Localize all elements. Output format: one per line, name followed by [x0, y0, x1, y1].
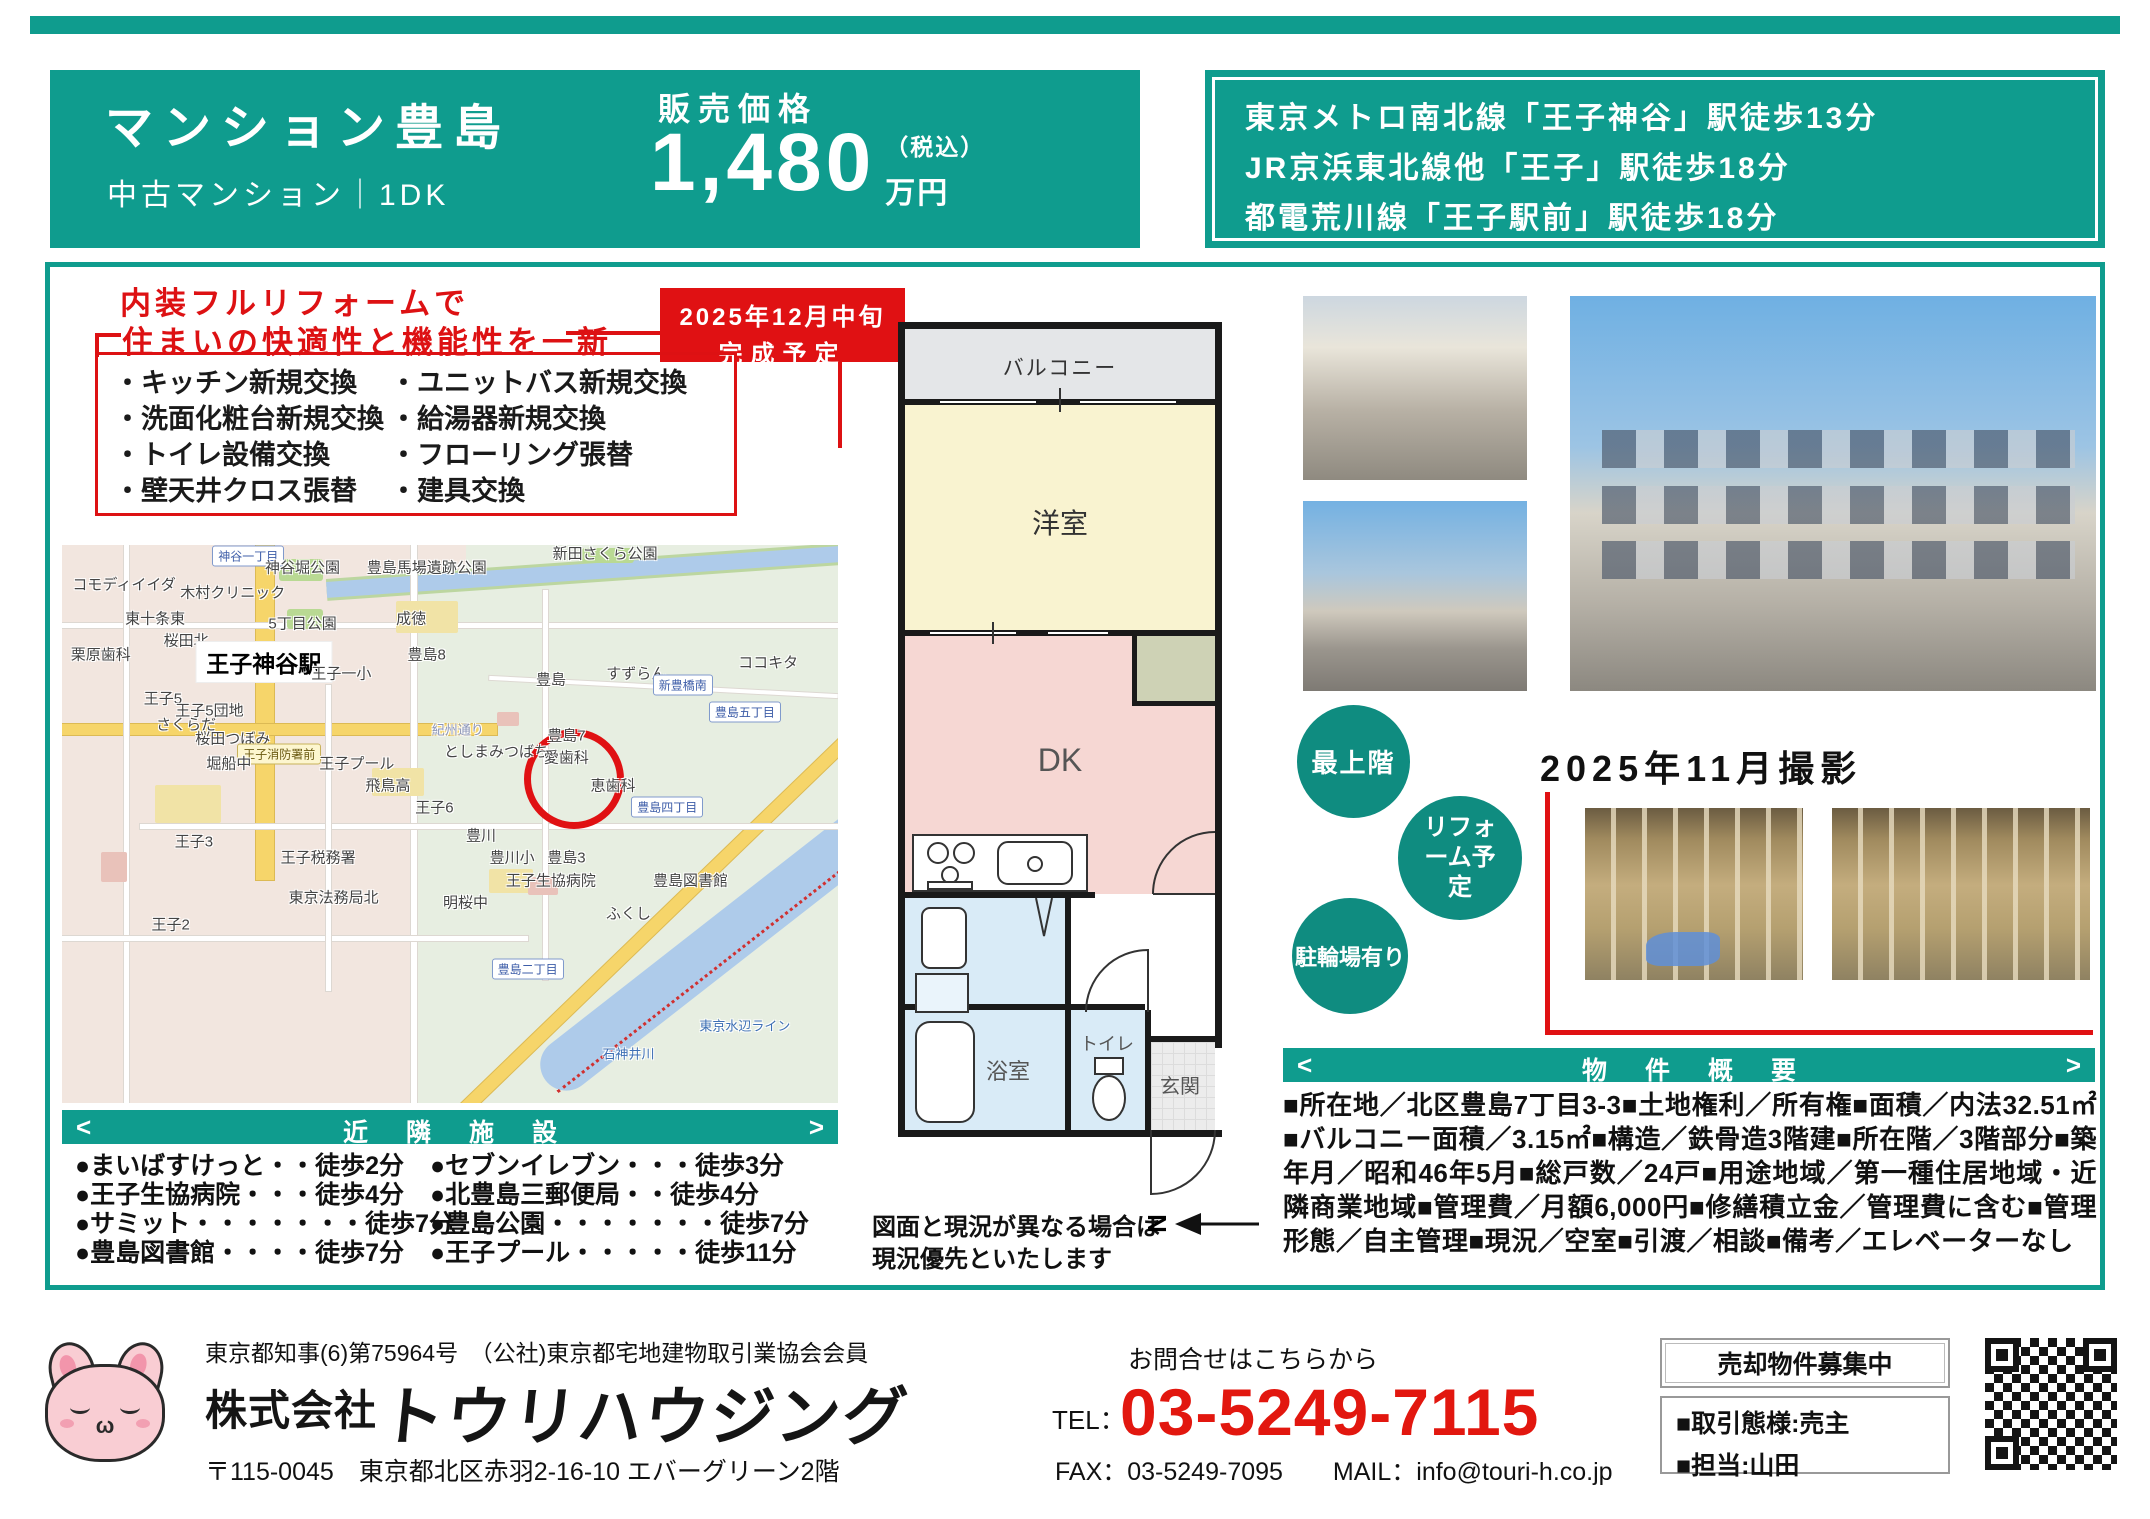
- bath-label: 浴室: [986, 1054, 1030, 1086]
- renovation-item: ・ユニットバス新規交換: [390, 365, 687, 401]
- renovation-items-left: ・キッチン新規交換・洗面化粧台新規交換・トイレ設備交換・壁天井クロス張替: [114, 365, 384, 509]
- map-label: 新田さくら公園: [553, 545, 658, 564]
- header-access-panel: 東京メトロ南北線「王子神谷」駅徒歩13分JR京浜東北線他「王子」駅徒歩18分都電…: [1205, 70, 2105, 248]
- facilities-list-right: ●セブンイレブン・・・徒歩3分●北豊島三郵便局・・徒歩4分●豊島公園・・・・・・…: [430, 1152, 809, 1268]
- toilet-label: トイレ: [1080, 1030, 1134, 1056]
- top-accent-strip: [30, 16, 2120, 34]
- map-label: 栗原歯科: [71, 643, 131, 664]
- map-label: 豊川: [466, 825, 496, 846]
- property-overview-text: ■所在地／北区豊島7丁目3-3■土地権利／所有権■面積／内法32.51㎡■バルコ…: [1283, 1088, 2097, 1258]
- company-logo: 株式会社 トウリハウジング: [205, 1366, 909, 1458]
- closet: [1132, 636, 1215, 706]
- station-access-line: 東京メトロ南北線「王子神谷」駅徒歩13分: [1245, 94, 1878, 144]
- floor-plan-disclaimer: 図面と現況が異なる場合は 現況優先といたします: [872, 1212, 1160, 1276]
- renovation-item: ・フローリング張替: [390, 437, 687, 473]
- map-label: 豊島7: [547, 724, 585, 745]
- tel-label: TEL：: [1052, 1400, 1126, 1437]
- photo-shoot-date: 2025年11月撮影: [1540, 740, 1862, 792]
- map-label: 豊島8: [408, 643, 446, 664]
- facility-item: ●王子プール・・・・・徒歩11分: [430, 1239, 809, 1268]
- facility-item: ●北豊島三郵便局・・徒歩4分: [430, 1181, 809, 1210]
- facility-item: ●王子生協病院・・・徒歩4分: [75, 1181, 454, 1210]
- contact-label: お問合せはこちらから: [1128, 1340, 1378, 1376]
- map-label: 新豊橋南: [653, 674, 713, 695]
- recruit-box: 売却物件募集中: [1660, 1338, 1950, 1388]
- facility-item: ●豊島公園・・・・・・・徒歩7分: [430, 1210, 809, 1239]
- bicycle-parking-photo: [1303, 296, 1527, 480]
- blue-sheet: [1646, 932, 1720, 966]
- map-label: 王子生協病院: [506, 869, 596, 890]
- interior-renovation-photo: [1832, 808, 2090, 980]
- access-panel-border: 東京メトロ南北線「王子神谷」駅徒歩13分JR京浜東北線他「王子」駅徒歩18分都電…: [1212, 77, 2098, 241]
- map-label: 豊島馬場遺跡公園: [367, 557, 487, 578]
- floor-plan: バルコニー 洋室 DK 浴室 トイレ 玄関 洗濯機置場: [898, 322, 1222, 1222]
- red-connector-line: [566, 331, 662, 335]
- map-label: 王子プール: [319, 752, 394, 773]
- map-label: 王子3: [175, 830, 213, 851]
- qr-finder: [1985, 1338, 2019, 1372]
- completion-badge: 2025年12月中旬 完成予定: [660, 288, 905, 362]
- price-side: （税込） 万円: [885, 122, 985, 212]
- fax-mail-line: FAX：03-5249-7095 MAIL：info@touri-h.co.jp: [1055, 1452, 1613, 1488]
- company-address: 〒115-0045 東京都北区赤羽2-16-10 エバーグリーン2階: [205, 1452, 840, 1488]
- map-label: 豊島五丁目: [709, 702, 781, 723]
- dk-label: DK: [898, 742, 1222, 779]
- renovation-items-box: ・キッチン新規交換・洗面化粧台新規交換・トイレ設備交換・壁天井クロス張替 ・ユニ…: [95, 352, 737, 516]
- station-access-line: JR京浜東北線他「王子」駅徒歩18分: [1245, 144, 1878, 194]
- facility-item: ●まいばすけっと・・徒歩2分: [75, 1152, 454, 1181]
- map-label: 東京法務局北: [289, 886, 379, 907]
- station-access-line: 都電荒川線「王子駅前」駅徒歩18分: [1245, 194, 1878, 244]
- map-label: 飛鳥高: [365, 774, 410, 795]
- map-label: 豊島四丁目: [631, 797, 703, 818]
- map-label: 王子税務署: [281, 847, 356, 868]
- map-label: 恵歯科: [590, 774, 635, 795]
- tel-number[interactable]: 03-5249-7115: [1120, 1374, 1539, 1450]
- map-label: コモディイイダ: [72, 574, 175, 595]
- building-facade: [1602, 486, 2075, 524]
- street-view-photo: [1303, 501, 1527, 691]
- red-bracket-line: [1545, 1030, 2093, 1035]
- map-label: 愛歯科: [544, 747, 589, 768]
- license-number: 東京都知事(6)第75964号 （公社)東京都宅地建物取引業協会会員: [205, 1334, 868, 1368]
- property-overview-title: 物件概要: [1283, 1051, 2095, 1087]
- property-name: マンション豊島: [105, 88, 511, 158]
- wall-studs: [1832, 808, 2090, 980]
- agent-box: ■取引態様:売主 ■担当:山田: [1660, 1396, 1950, 1474]
- completion-date: 2025年12月中旬: [660, 297, 905, 332]
- renovation-item: ・給湯器新規交換: [390, 401, 687, 437]
- property-overview-bar: < 物件概要 >: [1283, 1048, 2095, 1082]
- company-name: トウリハウジング: [377, 1366, 915, 1458]
- mascot-face: ω: [45, 1364, 165, 1462]
- map-label: 王子6: [415, 797, 453, 818]
- top-floor-badge: 最上階: [1297, 705, 1410, 818]
- building-exterior-photo: [1570, 296, 2096, 691]
- map-label: 堀船中: [206, 752, 251, 773]
- price-value: 1,480: [650, 122, 875, 204]
- map-label: 紀州通り: [432, 720, 484, 739]
- red-bracket-line: [95, 333, 121, 337]
- building-facade: [1602, 541, 2075, 579]
- map-label: 王子2: [151, 914, 189, 935]
- chevron-right-icon: >: [2066, 1050, 2081, 1081]
- red-connector-line: [838, 362, 842, 448]
- interior-renovation-photo: [1585, 808, 1803, 980]
- map-label: 木村クリニック: [180, 582, 285, 603]
- map-label: 東十条東: [125, 607, 185, 628]
- nearby-facilities-title: 近隣施設: [62, 1113, 838, 1149]
- neighborhood-map[interactable]: コモディイイダ神谷一丁目木村クリニック神谷堀公園豊島馬場遺跡公園新田さくら公園東…: [62, 545, 838, 1103]
- mascot-mouth: ω: [48, 1413, 162, 1439]
- map-label: 豊島図書館: [653, 869, 728, 890]
- map-label: 豊島二丁目: [492, 959, 564, 980]
- facility-item: ●セブンイレブン・・・徒歩3分: [430, 1152, 809, 1181]
- renovation-item: ・洗面化粧台新規交換: [114, 401, 384, 437]
- company-prefix: 株式会社: [205, 1387, 377, 1434]
- station-access-list: 東京メトロ南北線「王子神谷」駅徒歩13分JR京浜東北線他「王子」駅徒歩18分都電…: [1245, 94, 1878, 244]
- facility-item: ●サミット・・・・・・・徒歩7分: [75, 1210, 454, 1239]
- map-label: 豊島: [536, 668, 566, 689]
- header-property-panel: マンション豊島 中古マンション｜1DK 販売価格 1,480 （税込） 万円: [50, 70, 1140, 248]
- laundry-label: 洗濯機置場: [920, 978, 950, 1002]
- facility-item: ●豊島図書館・・・・徒歩7分: [75, 1239, 454, 1268]
- map-label: ココキタ: [738, 652, 798, 673]
- qr-finder: [2083, 1338, 2117, 1372]
- renovation-item: ・トイレ設備交換: [114, 437, 384, 473]
- property-type: 中古マンション｜1DK: [107, 170, 449, 214]
- reform-planned-badge: リフォーム予定: [1398, 796, 1522, 920]
- price-tax-note: （税込）: [885, 128, 985, 162]
- nearby-facilities-bar: < 近隣施設 >: [62, 1110, 838, 1144]
- chevron-right-icon: >: [809, 1112, 824, 1143]
- western-room-label: 洋室: [898, 502, 1222, 542]
- map-label: 豊川小: [490, 847, 535, 868]
- map-label: ふくし: [606, 903, 651, 924]
- map-label: 石神井川: [602, 1043, 654, 1062]
- price-row: 1,480 （税込） 万円: [650, 122, 985, 212]
- renovation-item: ・壁天井クロス張替: [114, 473, 384, 509]
- map-label: 豊島3: [547, 847, 585, 868]
- building-facade: [1602, 430, 2075, 468]
- map-label: 東京水辺ライン: [699, 1015, 790, 1034]
- red-bracket-line: [1545, 792, 1550, 1035]
- agent-name: ■担当:山田: [1676, 1446, 1948, 1482]
- company-mascot-icon: ω: [45, 1342, 167, 1464]
- bicycle-parking-badge: 駐輪場有り: [1292, 898, 1408, 1014]
- kitchen-counter: [912, 834, 1088, 892]
- renovation-items-right: ・ユニットバス新規交換・給湯器新規交換・フローリング張替・建具交換: [390, 365, 687, 509]
- map-label: 神谷堀公園: [265, 557, 340, 578]
- facilities-list-left: ●まいばすけっと・・徒歩2分●王子生協病院・・・徒歩4分●サミット・・・・・・・…: [75, 1152, 454, 1268]
- room-bath: [905, 1010, 1065, 1130]
- renovation-item: ・キッチン新規交換: [114, 365, 384, 401]
- entrance-label: 玄関: [1160, 1070, 1200, 1099]
- map-label: 5丁目公園: [268, 613, 336, 634]
- renovation-item: ・建具交換: [390, 473, 687, 509]
- map-labels: コモディイイダ神谷一丁目木村クリニック神谷堀公園豊島馬場遺跡公園新田さくら公園東…: [62, 545, 838, 1103]
- north-arrow-icon: N: [1148, 1208, 1261, 1239]
- qr-code: [1985, 1338, 2117, 1470]
- room-toilet: [1071, 1010, 1145, 1130]
- recruit-label: 売却物件募集中: [1665, 1343, 1945, 1383]
- map-label: 明桜中: [443, 892, 488, 913]
- balcony-label: バルコニー: [898, 352, 1222, 382]
- price-unit: 万円: [885, 168, 985, 212]
- map-label: 成徳: [396, 607, 426, 628]
- map-label: 王子一小: [311, 663, 371, 684]
- qr-finder: [1985, 1436, 2019, 1470]
- deal-type: ■取引態様:売主: [1676, 1404, 1948, 1440]
- map-label: としまみつばち: [444, 741, 549, 762]
